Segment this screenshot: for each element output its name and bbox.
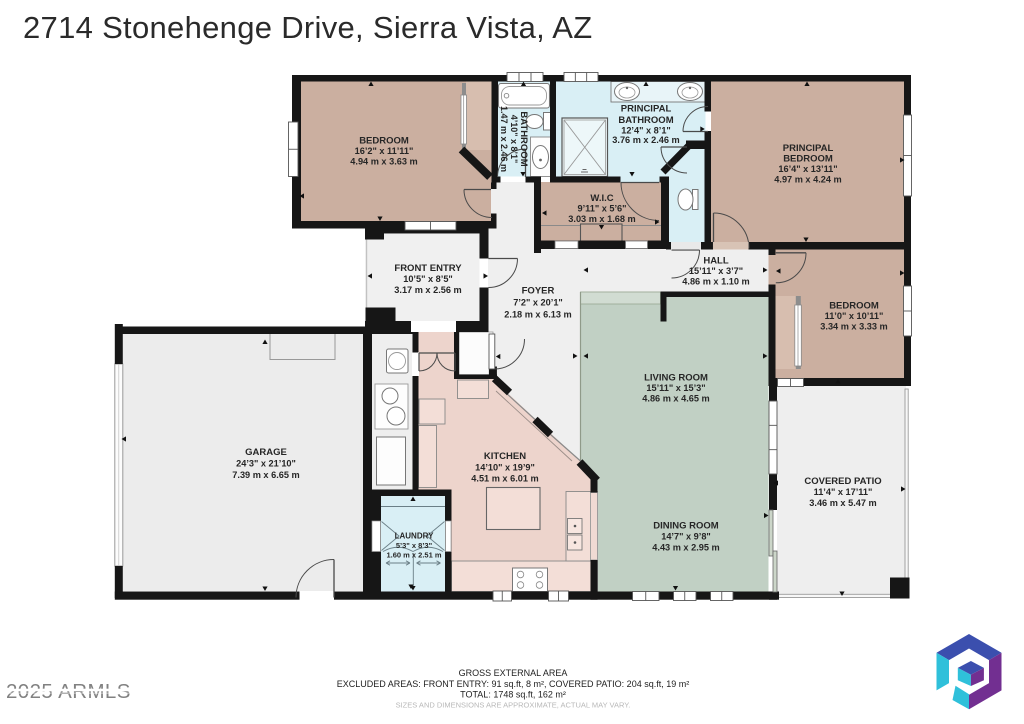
svg-text:SIZES AND DIMENSIONS ARE APPRO: SIZES AND DIMENSIONS ARE APPROXIMATE, AC…: [396, 701, 631, 710]
svg-text:2025 ARMLS: 2025 ARMLS: [6, 680, 131, 703]
svg-text:BATHROOM: BATHROOM: [618, 115, 673, 126]
svg-text:3.46 m x 5.47 m: 3.46 m x 5.47 m: [809, 498, 876, 508]
svg-text:KITCHEN: KITCHEN: [484, 451, 526, 462]
svg-text:4.86 m x 4.65 m: 4.86 m x 4.65 m: [642, 394, 709, 404]
svg-text:15’11" x 15’3": 15’11" x 15’3": [646, 383, 705, 393]
svg-text:16’2" x 11’11": 16’2" x 11’11": [355, 146, 414, 156]
svg-text:7.39 m x 6.65 m: 7.39 m x 6.65 m: [232, 470, 299, 480]
svg-text:4.51 m x 6.01 m: 4.51 m x 6.01 m: [471, 474, 538, 484]
svg-text:15’11" x 3’7": 15’11" x 3’7": [689, 266, 743, 276]
svg-text:W.I.C: W.I.C: [590, 193, 613, 204]
svg-text:PRINCIPAL: PRINCIPAL: [621, 104, 672, 115]
svg-text:GROSS EXTERNAL AREA: GROSS EXTERNAL AREA: [459, 668, 568, 678]
svg-text:DINING ROOM: DINING ROOM: [653, 521, 719, 532]
svg-text:9’11" x 5’6": 9’11" x 5’6": [577, 204, 626, 214]
svg-text:FRONT ENTRY: FRONT ENTRY: [394, 263, 462, 274]
svg-text:1.47 m x 2.46 m: 1.47 m x 2.46 m: [499, 106, 509, 172]
svg-text:4.86 m x 1.10 m: 4.86 m x 1.10 m: [682, 277, 749, 287]
svg-text:11’4" x 17’11": 11’4" x 17’11": [814, 487, 873, 497]
svg-text:LIVING ROOM: LIVING ROOM: [644, 373, 708, 384]
svg-text:14’10" x 19’9": 14’10" x 19’9": [475, 463, 535, 473]
svg-text:2714 Stonehenge Drive, Sierra: 2714 Stonehenge Drive, Sierra Vista, AZ: [23, 10, 592, 45]
svg-text:4.43 m x 2.95 m: 4.43 m x 2.95 m: [652, 543, 719, 553]
svg-text:10’5" x 8’5": 10’5" x 8’5": [403, 274, 453, 284]
svg-text:GARAGE: GARAGE: [245, 447, 287, 458]
svg-text:7’2" x 20’1": 7’2" x 20’1": [513, 298, 563, 308]
svg-text:PRINCIPAL: PRINCIPAL: [783, 143, 834, 154]
svg-text:11’0" x 10’11": 11’0" x 10’11": [825, 311, 884, 321]
svg-text:4.94 m x 3.63 m: 4.94 m x 3.63 m: [350, 157, 417, 167]
svg-text:16’4" x 13’11": 16’4" x 13’11": [778, 164, 837, 174]
svg-text:14’7" x 9’8": 14’7" x 9’8": [661, 532, 711, 542]
svg-text:12’4" x 8’1": 12’4" x 8’1": [621, 126, 671, 136]
svg-text:HALL: HALL: [703, 256, 729, 267]
svg-text:24’3" x 21’10": 24’3" x 21’10": [236, 459, 296, 469]
svg-text:BEDROOM: BEDROOM: [359, 136, 409, 147]
svg-text:4’10" x 8’1": 4’10" x 8’1": [509, 115, 519, 164]
svg-text:2.18 m x 6.13 m: 2.18 m x 6.13 m: [504, 310, 571, 320]
svg-text:EXCLUDED AREAS: FRONT ENTRY: 9: EXCLUDED AREAS: FRONT ENTRY: 91 sq.ft, 8…: [337, 679, 689, 689]
svg-text:BEDROOM: BEDROOM: [783, 154, 833, 165]
svg-text:5’3" x 8’3": 5’3" x 8’3": [396, 541, 433, 550]
svg-text:BEDROOM: BEDROOM: [829, 301, 879, 312]
svg-text:3.34 m x 3.33 m: 3.34 m x 3.33 m: [820, 322, 887, 332]
svg-text:3.17 m x 2.56 m: 3.17 m x 2.56 m: [394, 285, 461, 295]
svg-text:TOTAL: 1748 sq.ft, 162 m²: TOTAL: 1748 sq.ft, 162 m²: [460, 690, 566, 700]
svg-text:1.60 m x 2.51 m: 1.60 m x 2.51 m: [386, 551, 441, 560]
svg-text:3.03 m x 1.68 m: 3.03 m x 1.68 m: [568, 214, 635, 224]
svg-text:3.76 m x 2.46 m: 3.76 m x 2.46 m: [612, 135, 679, 145]
svg-text:COVERED PATIO: COVERED PATIO: [804, 476, 881, 487]
svg-text:FOYER: FOYER: [522, 286, 555, 297]
svg-text:LAUNDRY: LAUNDRY: [395, 532, 434, 541]
svg-text:4.97 m x 4.24 m: 4.97 m x 4.24 m: [774, 175, 841, 185]
